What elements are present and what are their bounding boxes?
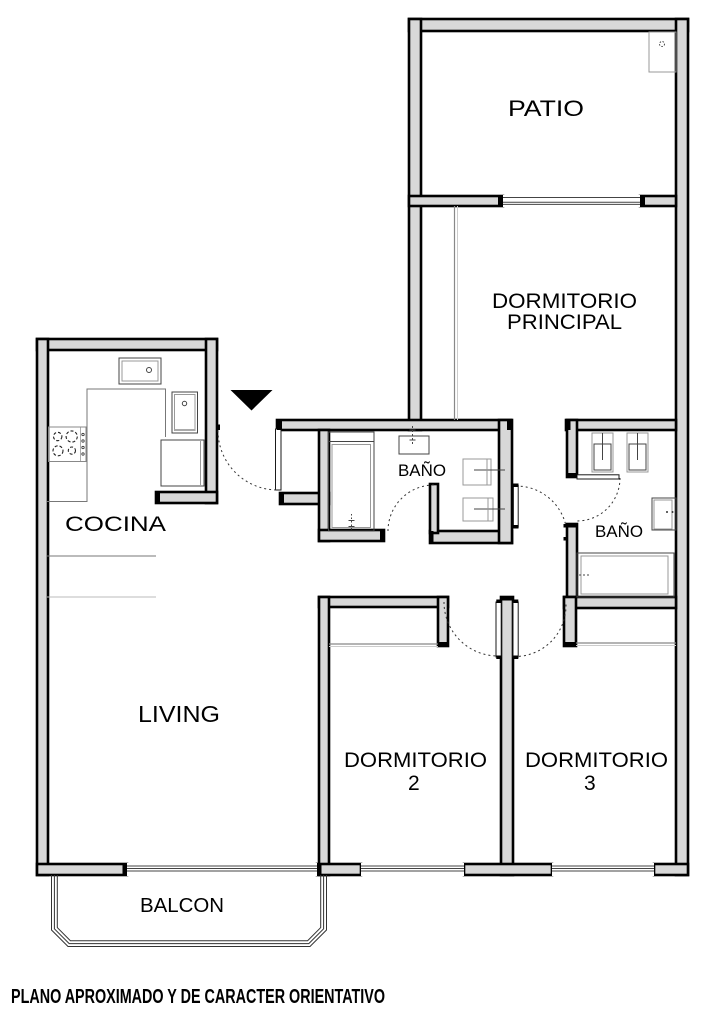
- svg-text:PLANO APROXIMADO Y DE CARACTER: PLANO APROXIMADO Y DE CARACTER ORIENTATI…: [11, 985, 385, 1008]
- svg-text:2: 2: [408, 772, 420, 795]
- svg-text:BAÑO: BAÑO: [595, 522, 643, 541]
- svg-text:LIVING: LIVING: [138, 701, 220, 727]
- svg-text:PATIO: PATIO: [508, 96, 584, 121]
- svg-text:DORMITORIO: DORMITORIO: [492, 290, 637, 313]
- svg-text:DORMITORIO: DORMITORIO: [344, 749, 487, 772]
- svg-text:PRINCIPAL: PRINCIPAL: [507, 311, 622, 334]
- svg-text:DORMITORIO: DORMITORIO: [525, 749, 668, 772]
- svg-text:3: 3: [584, 772, 596, 795]
- svg-text:BALCON: BALCON: [140, 895, 224, 917]
- svg-text:BAÑO: BAÑO: [398, 461, 446, 480]
- svg-text:COCINA: COCINA: [65, 513, 166, 536]
